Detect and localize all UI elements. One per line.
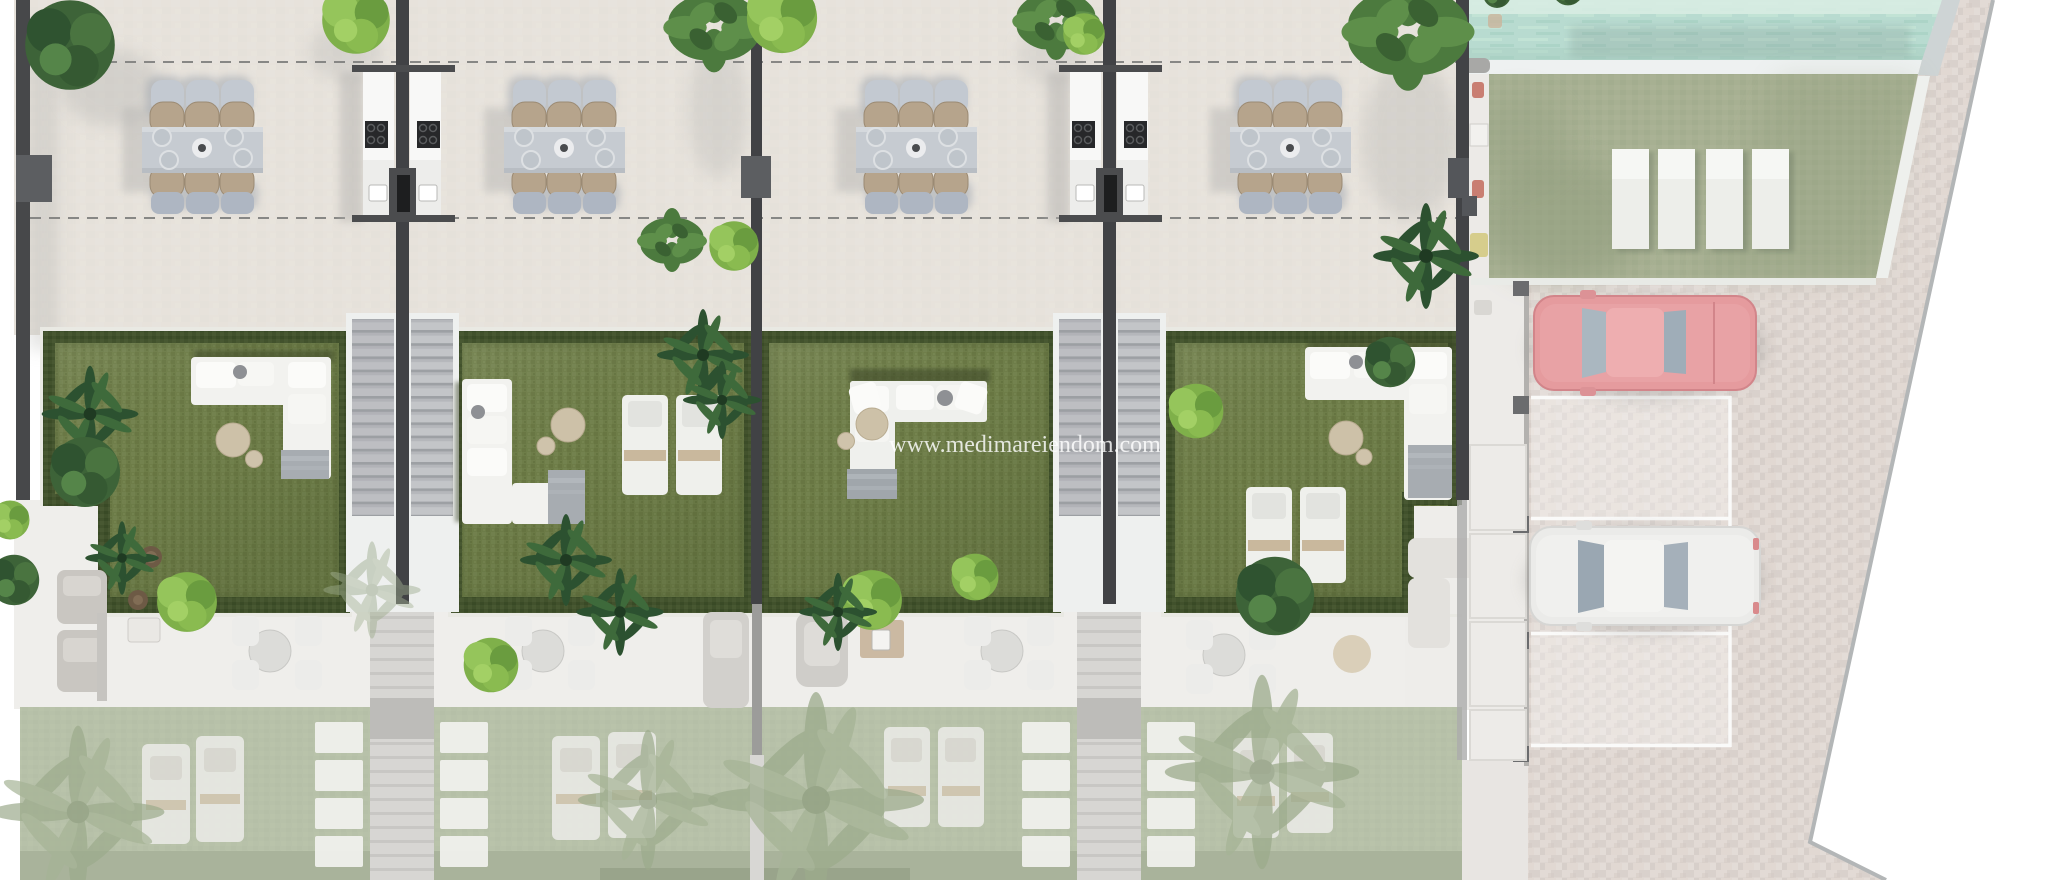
svg-text:www.medimareiendom.com: www.medimareiendom.com	[889, 432, 1161, 458]
